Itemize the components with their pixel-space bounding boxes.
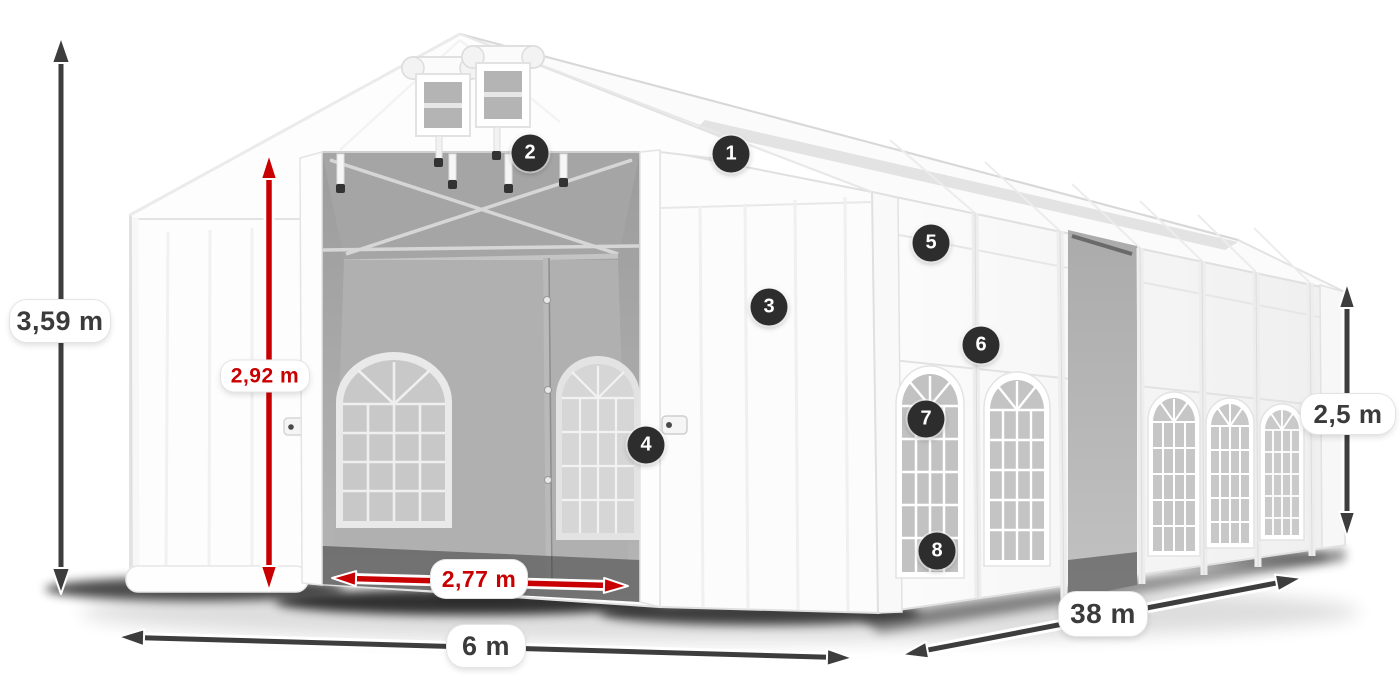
side-window-4 [1206, 398, 1254, 548]
callout-7-window[interactable]: 7 [908, 401, 945, 438]
side-window-2 [984, 372, 1050, 566]
callout-5-side-panel[interactable]: 5 [913, 225, 950, 262]
callout-4-door[interactable]: 4 [628, 427, 665, 464]
interior-window-left [336, 352, 452, 528]
callout-3-front-wall[interactable]: 3 [751, 289, 788, 326]
front-right-door-panel [660, 150, 878, 613]
entrance-height-label: 2,92 m [221, 361, 309, 392]
tent-illustration [0, 0, 1400, 700]
width-label: 6 m [447, 625, 525, 667]
side-height-label: 2,5 m [1301, 394, 1395, 434]
entrance-width-label: 2,77 m [431, 560, 527, 598]
side-entrance-opening [1068, 230, 1137, 599]
door-handle-right [662, 416, 687, 434]
side-window-3 [1148, 392, 1200, 556]
callout-2-entrance-top[interactable]: 2 [512, 135, 549, 172]
callout-6-panel-seam[interactable]: 6 [963, 327, 1000, 364]
total-height-label: 3,59 m [10, 300, 110, 342]
front-entrance-interior [302, 152, 640, 602]
entrance-post-right [640, 150, 660, 607]
callout-1-roof[interactable]: 1 [713, 136, 750, 173]
length-label: 38 m [1059, 592, 1147, 636]
callout-8-window-bottom[interactable]: 8 [919, 533, 956, 570]
tent-dimension-diagram: 3,59 m 2,92 m 2,77 m 6 m 38 m 2,5 m 1 2 … [0, 0, 1400, 700]
side-window-5 [1260, 404, 1304, 540]
